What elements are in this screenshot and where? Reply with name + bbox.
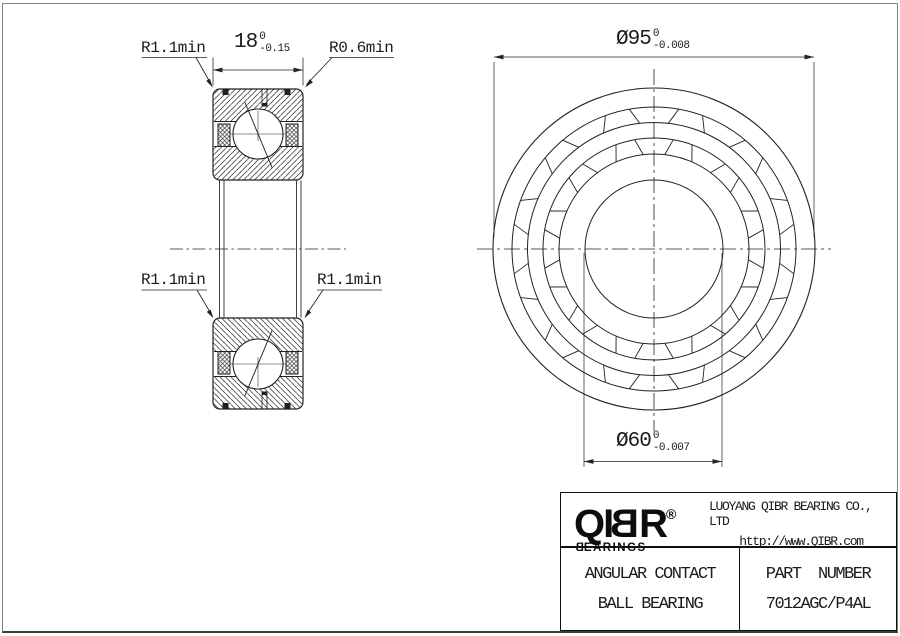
bearing-front-view xyxy=(477,69,831,431)
bearing-half-section xyxy=(213,89,303,180)
product-line1: ANGULAR CONTACT xyxy=(585,565,716,584)
od-tol-lower: -0.008 xyxy=(653,41,690,53)
logo-wordmark: QIBR® xyxy=(574,496,676,542)
company-info: LUOYANG QIBR BEARING CO., LTD http://www… xyxy=(709,499,893,549)
bore-diameter-tolerance: 0 -0.007 xyxy=(653,431,690,454)
bore-tol-upper: 0 xyxy=(653,431,690,443)
company-website: http://www.QIBR.com xyxy=(739,534,863,549)
fillet-callout-top-right: R0.6min xyxy=(329,39,393,57)
product-name-cell: ANGULAR CONTACT BALL BEARING xyxy=(561,548,739,630)
part-number-label: PART NUMBER xyxy=(766,565,870,584)
product-line2: BALL BEARING xyxy=(598,595,702,614)
fillet-callout-top-left: R1.1min xyxy=(141,39,205,57)
company-name: LUOYANG QIBR BEARING CO., LTD xyxy=(709,499,893,529)
fillet-callout-mid-right: R1.1min xyxy=(317,271,381,289)
bearing-section-view xyxy=(170,89,346,409)
bore-diameter-value: Ø60 xyxy=(616,430,651,454)
registered-trademark-symbol: ® xyxy=(666,506,676,522)
logo-qi: QI xyxy=(574,502,612,546)
width-dimension: 18 0 -0.15 xyxy=(234,31,290,55)
bearing-half-section-mirror xyxy=(213,318,303,409)
seal-left xyxy=(218,124,230,147)
outer-diameter-dimension: Ø95 0 -0.008 xyxy=(616,28,689,52)
title-block-lower-row: ANGULAR CONTACT BALL BEARING PART NUMBER… xyxy=(561,548,896,630)
width-tol-lower: -0.15 xyxy=(259,44,290,56)
logo-sub-mirrored-b: B xyxy=(574,542,584,554)
outer-diameter-value: Ø95 xyxy=(616,28,651,52)
width-tolerance: 0 -0.15 xyxy=(259,32,290,55)
drawing-page: R1.1min 18 0 -0.15 R0.6min R1.1min R1.1m… xyxy=(0,0,900,636)
bore-diameter-dimension: Ø60 0 -0.007 xyxy=(616,430,689,454)
part-number-cell: PART NUMBER 7012AGC/P4AL xyxy=(739,548,896,630)
width-tol-upper: 0 xyxy=(259,32,290,44)
logo-r: R xyxy=(639,502,666,546)
title-block-header-row: QIBR® BEARINGS LUOYANG QIBR BEARING CO.,… xyxy=(561,493,896,548)
part-number-value: 7012AGC/P4AL xyxy=(766,595,870,614)
width-value: 18 xyxy=(234,31,257,55)
bore-tol-lower: -0.007 xyxy=(653,443,690,455)
od-tol-upper: 0 xyxy=(653,29,690,41)
title-block: QIBR® BEARINGS LUOYANG QIBR BEARING CO.,… xyxy=(560,492,897,631)
logo-mirrored-b: B xyxy=(612,506,639,542)
seal-right xyxy=(286,124,298,147)
outer-diameter-tolerance: 0 -0.008 xyxy=(653,29,690,52)
company-logo: QIBR® BEARINGS xyxy=(574,496,676,554)
fillet-callout-mid-left: R1.1min xyxy=(141,271,205,289)
